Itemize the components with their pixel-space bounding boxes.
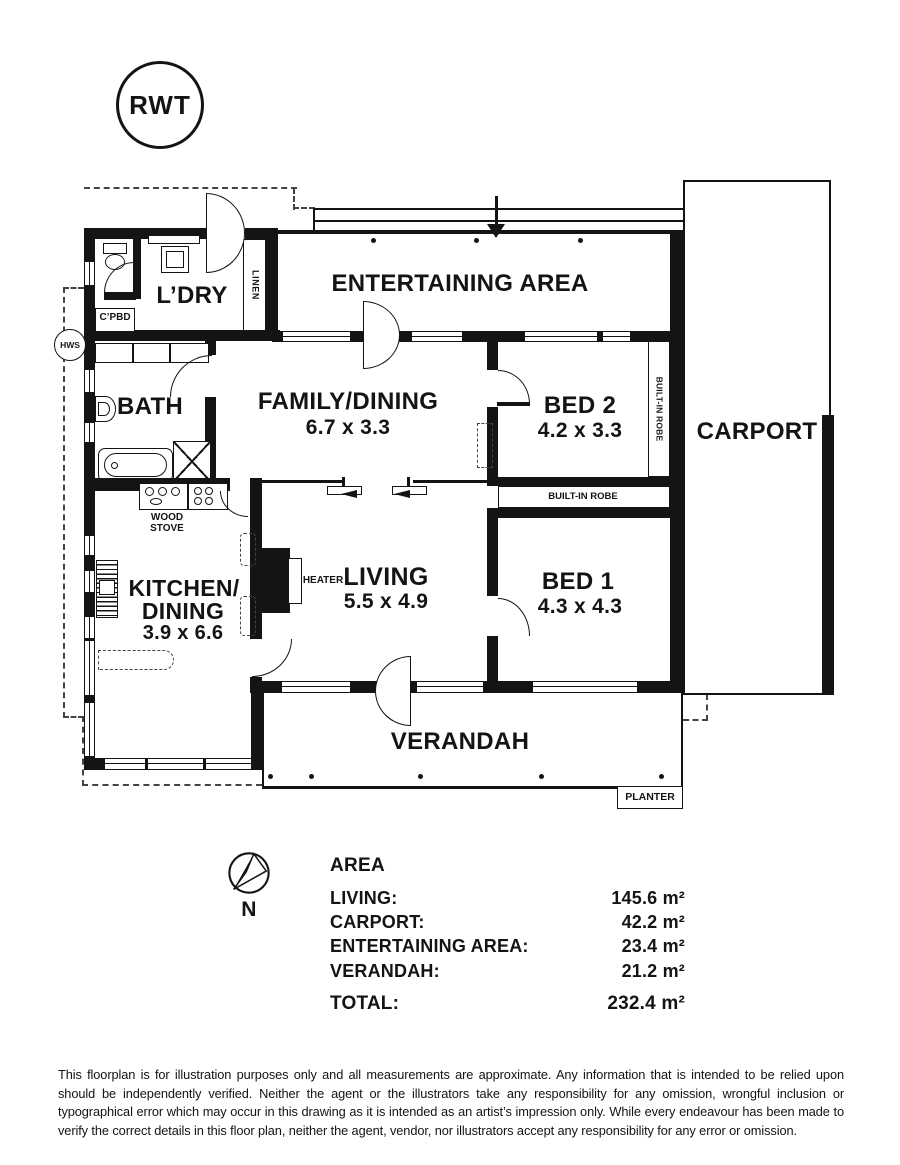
eave-outline-dash: [82, 784, 262, 786]
cupboard-dash: [240, 533, 256, 566]
toilet-icon: [103, 243, 127, 254]
area-row-value: 42.2 m²: [622, 912, 685, 936]
area-row-label: LIVING:: [330, 888, 397, 912]
door-arc: [206, 193, 245, 273]
room-label-carport: CARPORT: [697, 420, 818, 444]
rainwater-tank-icon: RWT: [116, 61, 204, 149]
wall: [487, 477, 684, 486]
wood-stove-label: STOVE: [150, 524, 184, 534]
area-total-row: TOTAL: 232.4 m²: [330, 993, 685, 1017]
window: [84, 536, 95, 555]
post-dot: [578, 238, 583, 243]
door-arc: [220, 491, 248, 517]
linen-label: LINEN: [251, 270, 260, 300]
room-label-bed1: BED 1: [542, 570, 614, 594]
room-dims-bed1: 4.3 x 4.3: [538, 596, 622, 617]
window: [206, 758, 251, 770]
laundry-bench: [148, 235, 200, 244]
area-total-value: 232.4 m²: [607, 993, 685, 1017]
verandah-edge: [681, 692, 683, 789]
room-dims-kitchen: 3.9 x 6.6: [143, 623, 224, 643]
bathtub-drain: [111, 462, 118, 469]
wall: [487, 518, 498, 596]
room-label-kitchen: DINING: [142, 600, 224, 623]
bench-dash: [98, 650, 174, 670]
stove-burner: [171, 487, 180, 496]
window: [417, 681, 483, 693]
window: [84, 641, 95, 695]
area-table-title: AREA: [330, 855, 685, 877]
area-row-label: ENTERTAINING AREA:: [330, 936, 529, 960]
wall: [487, 636, 498, 682]
room-label-family: FAMILY/DINING: [258, 390, 438, 414]
window: [84, 571, 95, 592]
wall: [245, 228, 278, 239]
room-label-ldry: L’DRY: [156, 284, 227, 308]
eave-outline-dash: [63, 716, 84, 718]
room-label-entertaining: ENTERTAINING AREA: [331, 272, 588, 296]
stove-burner: [150, 498, 162, 505]
stove-burner: [205, 497, 213, 505]
window: [84, 617, 95, 638]
door-arc: [498, 598, 530, 636]
vanity-divider: [132, 343, 134, 363]
window: [283, 331, 350, 342]
robe-label-bed2: BUILT-IN ROBE: [655, 377, 664, 442]
stove-burner: [194, 497, 202, 505]
area-row-value: 145.6 m²: [611, 888, 685, 912]
vanity-divider: [169, 343, 171, 363]
robe-label-bed1: BUILT-IN ROBE: [548, 492, 618, 502]
carport-wall: [822, 415, 834, 695]
opening-line: [257, 480, 345, 483]
window: [412, 331, 462, 342]
roofline: [313, 208, 683, 210]
window: [282, 681, 350, 693]
shower-icon: [173, 441, 211, 482]
room-label-bath: BATH: [117, 395, 183, 419]
slide-arrow: [341, 490, 357, 498]
disclaimer-text: This floorplan is for illustration purpo…: [58, 1066, 844, 1141]
door-arc: [363, 301, 400, 369]
room-dims-living: 5.5 x 4.9: [344, 591, 428, 612]
opening-line: [413, 480, 490, 483]
room-label-living: LIVING: [343, 565, 428, 590]
area-total-label: TOTAL:: [330, 993, 399, 1017]
carport-connector-dash: [683, 719, 708, 721]
washing-machine-icon: [166, 251, 184, 268]
wall: [487, 341, 498, 370]
window: [84, 703, 95, 756]
stove-burner: [158, 487, 167, 496]
planter-label: PLANTER: [625, 792, 675, 803]
window: [105, 758, 145, 770]
wall: [266, 239, 278, 331]
stove-burner: [205, 487, 213, 495]
rwt-label: RWT: [129, 90, 191, 121]
post-dot: [309, 774, 314, 779]
heater-icon: [262, 548, 290, 613]
compass-north-label: N: [241, 899, 256, 920]
area-row: CARPORT: 42.2 m²: [330, 912, 685, 936]
area-row-value: 21.2 m²: [622, 961, 685, 985]
area-table: AREA LIVING: 145.6 m² CARPORT: 42.2 m² E…: [330, 855, 685, 1017]
post-dot: [268, 774, 273, 779]
post-dot: [659, 774, 664, 779]
stove-burner: [145, 487, 154, 496]
post-dot: [371, 238, 376, 243]
room-label-bed2: BED 2: [544, 394, 616, 418]
window: [148, 758, 203, 770]
room-dims-family: 6.7 x 3.3: [306, 417, 390, 438]
post-dot: [418, 774, 423, 779]
entry-arrow: [495, 196, 498, 226]
window: [84, 423, 95, 442]
eave-outline-dash: [63, 287, 84, 289]
wall: [133, 239, 141, 299]
heater-label: HEATER: [303, 576, 343, 586]
area-row-label: CARPORT:: [330, 912, 425, 936]
post-dot: [539, 774, 544, 779]
stove-burner: [194, 487, 202, 495]
room-dims-bed2: 4.2 x 3.3: [538, 420, 622, 441]
door-arc: [498, 370, 530, 404]
area-row-value: 23.4 m²: [622, 936, 685, 960]
post-dot: [474, 238, 479, 243]
wall: [104, 292, 136, 300]
roof-outline-dash: [84, 187, 297, 189]
hws-label: HWS: [60, 340, 80, 350]
basin-icon: [98, 402, 110, 416]
entertaining-wall: [272, 230, 684, 234]
floorplan: RWT CARPORT ENTERTAINING AREA LINEN: [0, 0, 900, 1165]
window: [84, 262, 95, 285]
carport-connector-dash: [706, 694, 708, 721]
area-row: LIVING: 145.6 m²: [330, 888, 685, 912]
window: [525, 331, 597, 342]
slide-arrow: [394, 490, 410, 498]
wood-stove-label: WOOD: [151, 513, 183, 523]
wall: [487, 508, 684, 518]
room-label-kitchen: KITCHEN/: [128, 577, 239, 600]
window: [533, 681, 637, 693]
kitchen-sink-icon: [99, 580, 115, 595]
wall: [670, 230, 684, 692]
door-arc: [252, 639, 292, 677]
hws-icon: HWS: [54, 329, 86, 361]
window: [603, 331, 630, 342]
area-row: VERANDAH: 21.2 m²: [330, 961, 685, 985]
heater-icon: [288, 558, 302, 604]
area-row-label: VERANDAH:: [330, 961, 440, 985]
compass-icon: [226, 850, 272, 896]
area-row: ENTERTAINING AREA: 23.4 m²: [330, 936, 685, 960]
verandah-edge: [262, 692, 264, 788]
sliding-door-tick: [342, 477, 345, 487]
cupboard-dash: [240, 596, 256, 636]
robe-door-dash: [477, 423, 493, 468]
door-arc: [375, 656, 411, 726]
room-label-verandah: VERANDAH: [391, 730, 529, 754]
window: [84, 370, 95, 392]
cupboard-label: C’PBD: [99, 313, 130, 323]
roofline: [313, 220, 683, 222]
roof-outline-dash: [293, 207, 315, 209]
sliding-door-tick: [407, 477, 410, 487]
